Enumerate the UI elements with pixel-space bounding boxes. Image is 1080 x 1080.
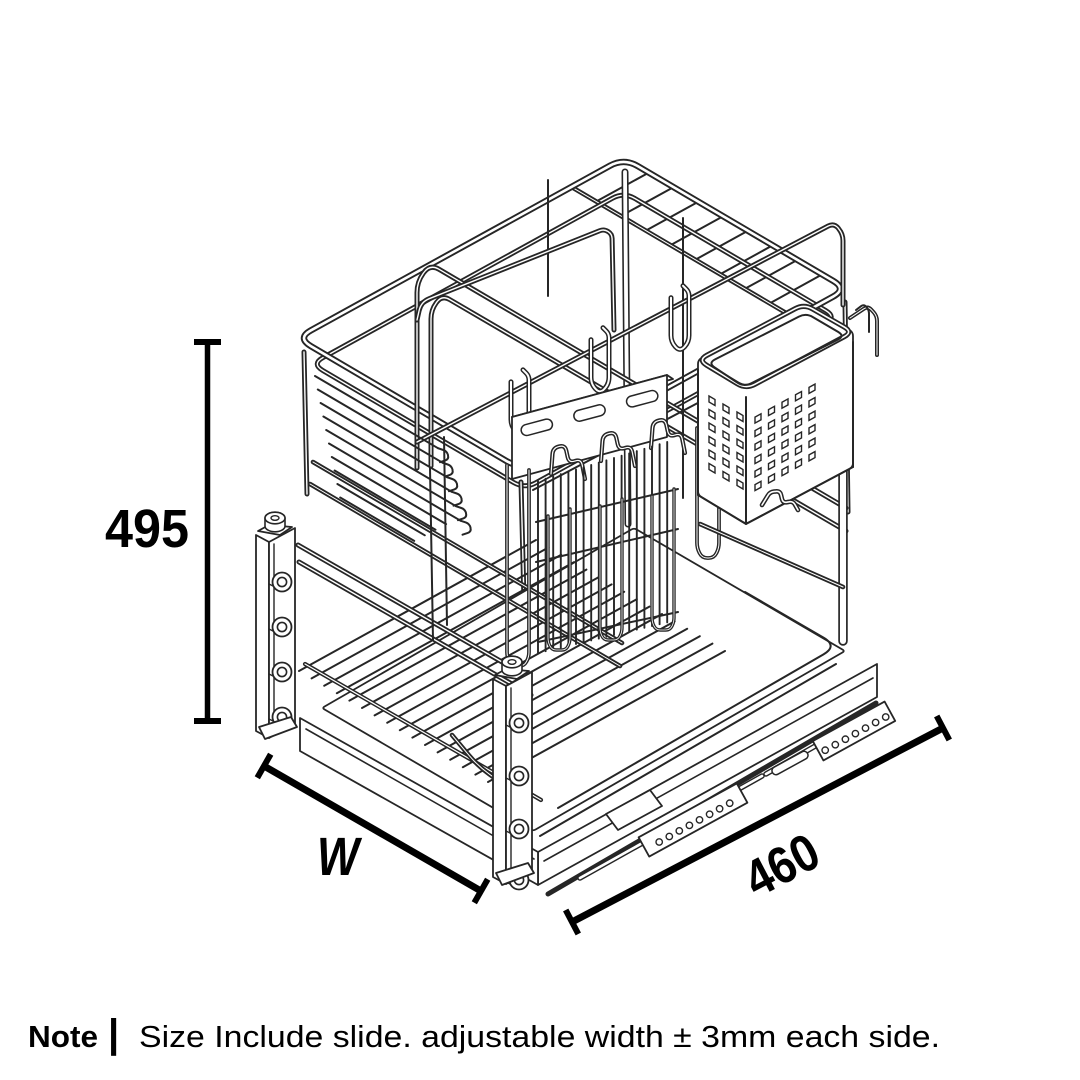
svg-text:|: |	[108, 1012, 119, 1056]
svg-text:W: W	[317, 827, 362, 887]
svg-text:495: 495	[105, 499, 189, 559]
svg-text:Note: Note	[28, 1019, 98, 1054]
svg-text:Size Include slide. adjustable: Size Include slide. adjustable width ± 3…	[139, 1019, 940, 1054]
